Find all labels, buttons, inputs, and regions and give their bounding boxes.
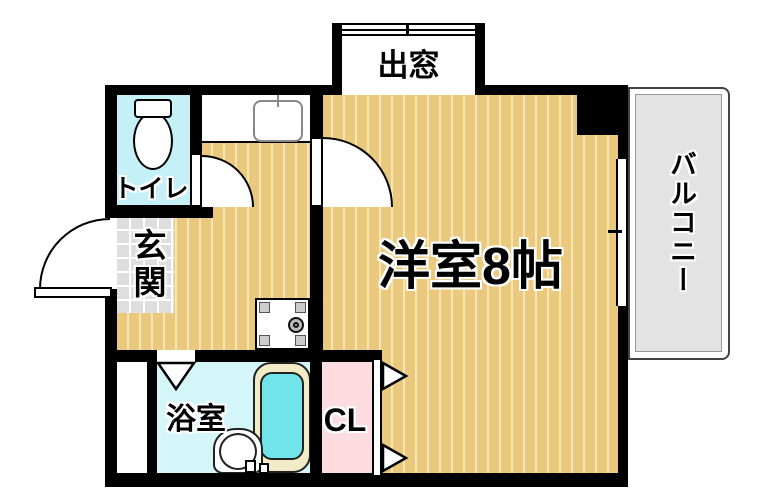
pipe-space	[117, 360, 147, 473]
toilet-icon	[133, 112, 173, 170]
bathroom-folding-door-icon	[156, 361, 196, 391]
closet-folding-door-icon-top	[381, 361, 408, 391]
bathroom-label: 浴室	[158, 394, 234, 438]
closet-label: CL	[316, 402, 374, 439]
wall-right-lower	[618, 306, 628, 483]
washing-machine-pan-icon	[255, 298, 310, 350]
main-room-label: 洋室8帖	[323, 224, 618, 299]
toilet-tank-icon	[134, 99, 172, 118]
bathtub-water	[260, 372, 304, 460]
entrance-door-swing-icon	[39, 218, 110, 289]
bay-window-label: 出窓	[342, 40, 475, 85]
wall-toilet-right	[190, 85, 202, 155]
floorplan: トイレ 玄関 出窓 洋室8帖 バルコニー 浴室 CL	[0, 0, 761, 503]
room-door-leaf	[310, 137, 323, 207]
wall-hall-room-lower	[310, 206, 323, 352]
wall-lowzone-right	[195, 350, 382, 362]
drain-icon	[288, 317, 304, 333]
wall-bottom	[105, 473, 628, 487]
tub-faucet-icon	[245, 460, 256, 473]
balcony-label: バルコニー	[662, 150, 701, 295]
wall-right-upper	[618, 135, 628, 161]
wall-top-left	[105, 85, 342, 95]
closet-folding-door-icon-bottom	[381, 443, 408, 473]
wall-left-lower	[105, 289, 117, 475]
entrance-label: 玄関	[123, 228, 171, 302]
toilet-label: トイレ	[105, 169, 197, 205]
wall-hall-room-upper	[310, 85, 323, 137]
bay-pillar-right	[475, 23, 485, 95]
faucet-icon	[277, 93, 279, 107]
bay-window-tick	[406, 23, 409, 36]
bay-pillar-left	[332, 23, 342, 95]
corner-pillar	[577, 85, 628, 135]
